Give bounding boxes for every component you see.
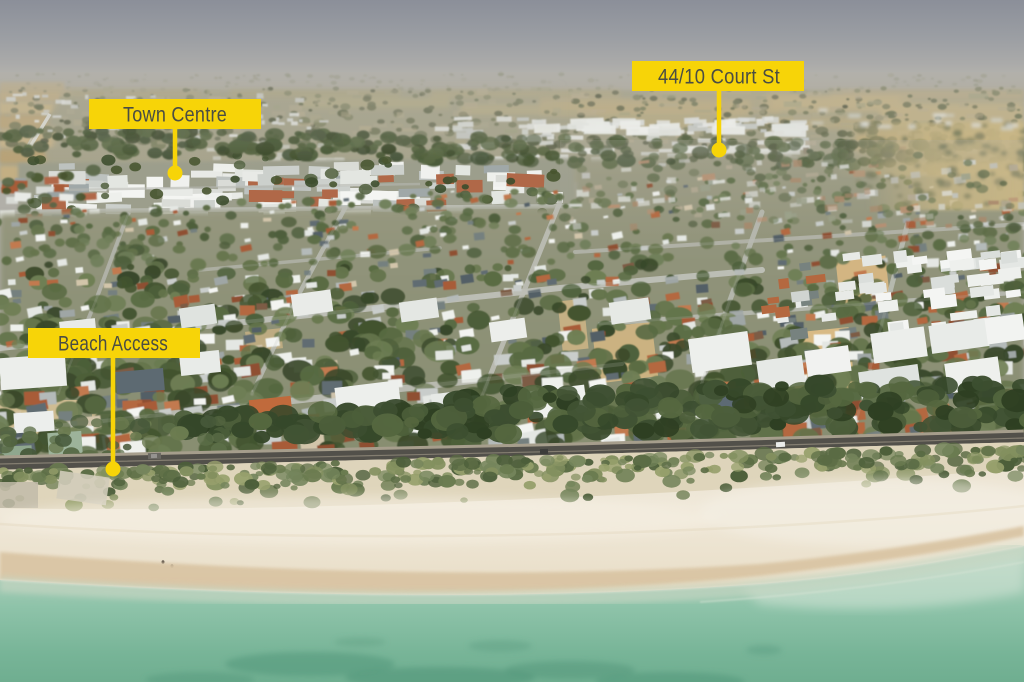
svg-text:Beach Access: Beach Access: [58, 332, 168, 356]
svg-text:44/10 Court St: 44/10 Court St: [658, 65, 780, 89]
svg-text:Town Centre: Town Centre: [123, 103, 227, 127]
